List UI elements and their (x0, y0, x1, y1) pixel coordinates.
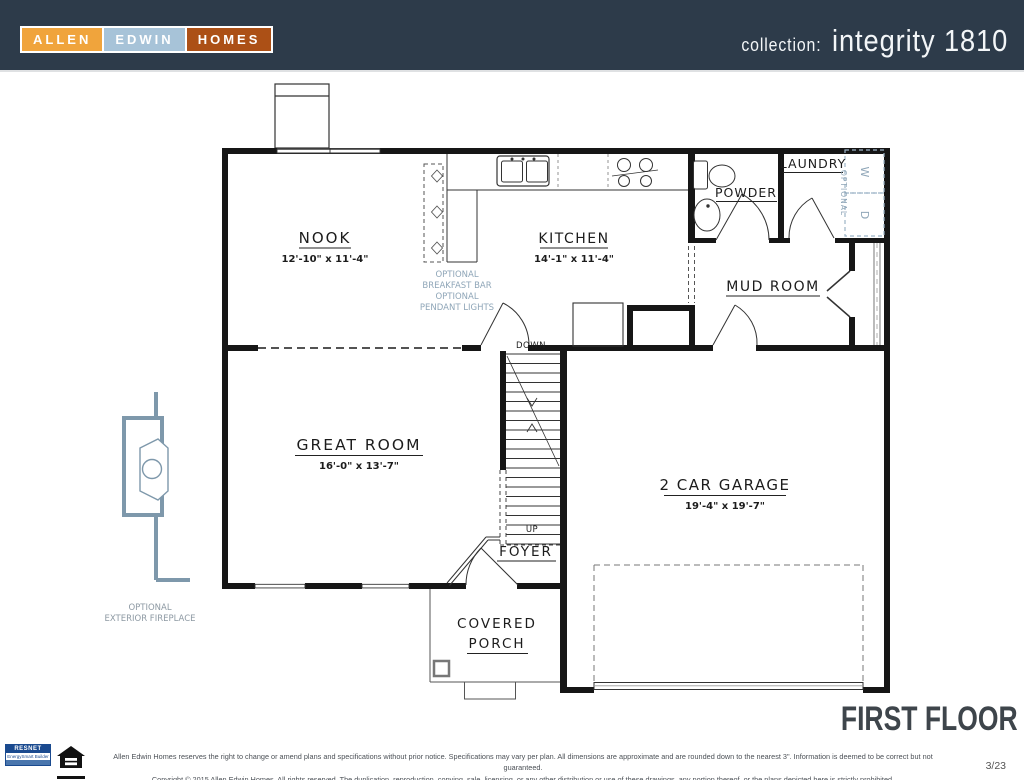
powder-label: POWDER (715, 185, 777, 200)
covered-porch-label-2: PORCH (468, 636, 525, 652)
resnet-logo: RESNET EnergySmart Builder (5, 744, 51, 766)
toilet-tank (694, 161, 708, 189)
disclaimer-line-1: Allen Edwin Homes reserves the right to … (100, 751, 946, 774)
garage-entry-door (713, 305, 757, 345)
chimney-bumpout (275, 84, 329, 148)
floor-title: FIRST FLOOR (841, 700, 1018, 739)
stairs-down-label: DOWN (516, 341, 546, 351)
stove (612, 159, 658, 187)
disclaimer: Allen Edwin Homes reserves the right to … (100, 751, 946, 780)
laundry-door (789, 198, 834, 238)
pedestal-sink (694, 199, 720, 231)
breakfast-bar-note-1: OPTIONAL (435, 270, 478, 280)
laundry-optional-label: OPTIONAL (839, 170, 848, 216)
powder-door (716, 194, 769, 240)
porch-post (434, 661, 449, 676)
mud-room-label: MUD ROOM (726, 279, 819, 295)
breakfast-bar-note-2: BREAKFAST BAR (422, 281, 491, 291)
laundry-label: LAUNDRY (780, 156, 846, 171)
resnet-label: RESNET (6, 745, 50, 753)
dryer-label: D (858, 211, 871, 219)
floor-plan: NOOK 12'-10" x 11'-4" KITCHEN 14'-1" x 1… (0, 0, 1024, 780)
doors (466, 194, 850, 585)
fireplace-note-1: OPTIONAL (128, 603, 171, 613)
foyer-chamfer-wall (447, 537, 500, 586)
kitchen-counters (447, 154, 688, 346)
up-arrow-icon (527, 424, 537, 432)
great-room-dims: 16'-0" x 13'-7" (319, 461, 399, 472)
kitchen-dims: 14'-1" x 11'-4" (534, 254, 614, 265)
breakfast-bar-note-3: OPTIONAL (435, 292, 478, 302)
equal-housing-text-strip (57, 776, 85, 779)
breakfast-bar (424, 164, 443, 262)
exterior-fireplace (124, 392, 190, 580)
stairs-up-label: UP (526, 525, 538, 535)
breakfast-bar-note-4: PENDANT LIGHTS (420, 303, 494, 313)
disclaimer-line-2: Copyright © 2015 Allen Edwin Homes. All … (100, 774, 946, 780)
pendant-light-icon (432, 242, 443, 254)
window-top (277, 149, 380, 153)
garage-dims: 19'-4" x 19'-7" (685, 501, 765, 512)
sheet-number: 3/23 (986, 760, 1006, 772)
window-great-room-2 (362, 584, 409, 588)
garage-door (594, 683, 863, 690)
toilet-bowl (709, 165, 735, 187)
pendant-light-icon (432, 206, 443, 218)
washer-label: W (858, 167, 871, 178)
stairs (506, 354, 560, 544)
refrigerator (573, 303, 623, 346)
equal-housing-icon (57, 746, 85, 779)
kitchen-sink (497, 156, 549, 186)
window-great-room-1 (255, 584, 305, 588)
covered-porch-label-1: COVERED (457, 616, 537, 632)
foyer-label: FOYER (499, 544, 553, 560)
kitchen-label: KITCHEN (538, 231, 609, 247)
fireplace-annotation: OPTIONAL EXTERIOR FIREPLACE (104, 603, 195, 624)
windows (255, 149, 409, 588)
washer-dryer (845, 150, 884, 236)
nook-label: NOOK (299, 229, 352, 247)
resnet-sub-label: EnergySmart Builder (6, 753, 50, 760)
pendant-light-icon (432, 170, 443, 182)
porch-step (465, 682, 516, 699)
mudroom-side-door (827, 271, 850, 317)
fireplace-note-2: EXTERIOR FIREPLACE (104, 614, 195, 624)
equal-housing-house (57, 746, 85, 770)
nook-dims: 12'-10" x 11'-4" (282, 254, 369, 265)
garage-label: 2 CAR GARAGE (659, 476, 790, 494)
resnet-band (6, 760, 50, 765)
great-room-label: GREAT ROOM (297, 436, 422, 454)
page: ALLEN EDWIN HOMES collection: integrity … (0, 0, 1024, 780)
